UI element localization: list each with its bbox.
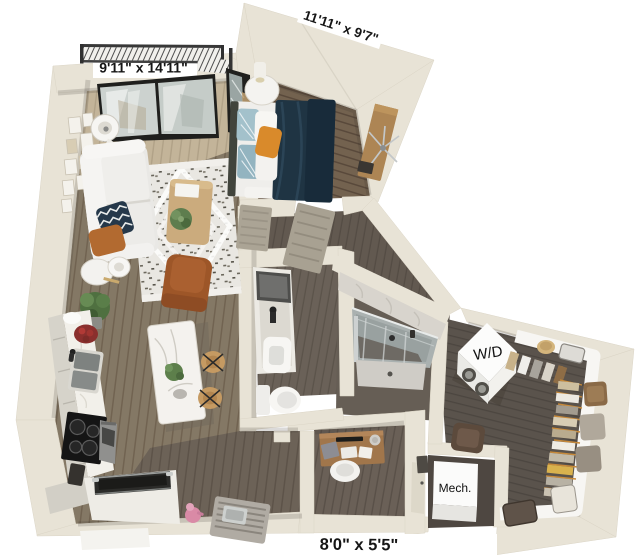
svg-text:9'11" x 14'11": 9'11" x 14'11" xyxy=(99,60,187,76)
svg-text:8'0" x 5'5": 8'0" x 5'5" xyxy=(320,536,399,555)
svg-text:Mech.: Mech. xyxy=(439,481,472,495)
